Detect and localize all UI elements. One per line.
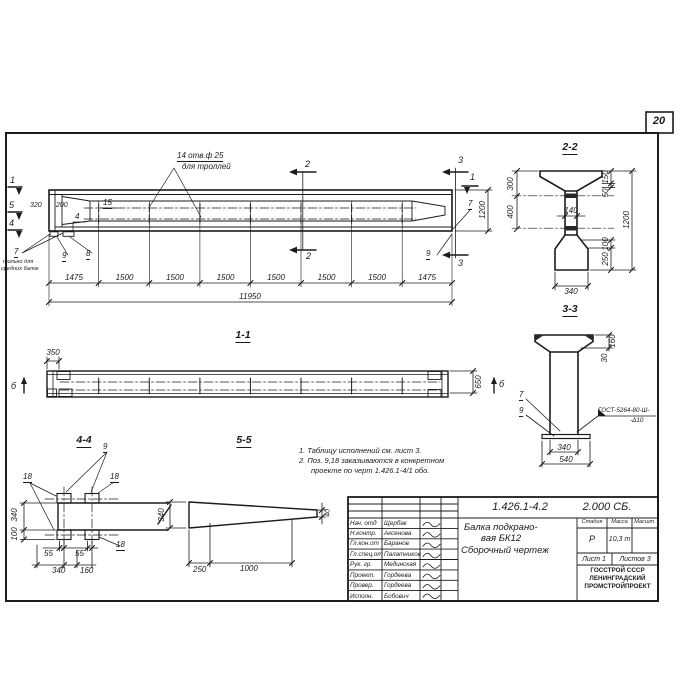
sheet-number: Лист 1 — [582, 556, 606, 563]
blueprint-page: { "page": { "number": "20" }, "main_view… — [0, 0, 700, 700]
pos-label-8: 8 — [86, 250, 90, 260]
dim-250: 250 — [602, 252, 610, 265]
pos-label-9-s33: 9 — [519, 407, 523, 417]
mass-value: 10,3 т — [609, 536, 630, 543]
org-name-line3: ПРОМСТРОЙПРОЕКТ — [584, 584, 650, 590]
pos-label-4: 4 — [75, 213, 79, 221]
drawing-title-line2: вая БК12 — [481, 534, 521, 544]
dim-100-section: 100 — [602, 237, 610, 250]
pos-7-note-line1: только для — [3, 260, 33, 266]
dim-segment: 1500 — [368, 274, 386, 282]
hole-callout-line2: для троллей — [182, 163, 231, 171]
tb-name: Бобович — [384, 594, 409, 600]
section-2-mark-bottom: 2 — [306, 252, 311, 261]
dim-total-11950: 11950 — [239, 293, 261, 301]
note-line-1: 1. Таблицу исполнений см. лист 3. — [299, 447, 422, 455]
view-1-1-title: 1-1 — [235, 330, 250, 343]
dim-55-left: 55 — [44, 550, 53, 558]
pos-label-9: 9 — [62, 252, 66, 262]
sheet-frame — [6, 112, 673, 601]
tb-name: Мединская — [384, 562, 416, 568]
view-mark-1: 1 — [10, 176, 15, 185]
section-4-4-lines — [20, 452, 171, 568]
dim-segment: 1500 — [217, 274, 235, 282]
org-name-line1: ГОССТРОЙ СССР — [590, 568, 644, 574]
pos-label-18-b: 18 — [110, 473, 119, 483]
view-mark-1-right: 1 — [470, 173, 475, 182]
drawing-title-line1: Балка подкрано- — [464, 523, 538, 533]
tb-name: Гордеева — [384, 583, 411, 589]
dim-340-s55: 340 — [158, 508, 166, 521]
dim-340-side-s44: 340 — [11, 508, 19, 521]
view-1-1-lines — [21, 357, 497, 397]
tb-name: Аксенова — [384, 531, 411, 537]
page-number: 20 — [653, 116, 665, 127]
col-header-mass: Масса — [611, 520, 628, 526]
tb-role: Гл.кон.от — [350, 541, 379, 547]
dim-340-bottom-s44: 340 — [52, 567, 65, 575]
tb-name: Гордеева — [384, 573, 411, 579]
pos-label-18-a: 18 — [23, 473, 32, 483]
dim-300: 300 — [507, 177, 515, 190]
tb-name: Баранов — [384, 541, 409, 547]
dim-150: 150 — [602, 170, 610, 183]
section-3-3-title: 3-3 — [562, 304, 577, 317]
tb-role: Гл.спец.от — [350, 552, 383, 558]
view-mark-4: 4 — [9, 219, 14, 228]
tb-role: Проект. — [350, 573, 375, 579]
view-mark-b-right: б — [499, 380, 504, 389]
section-2-mark-top: 2 — [305, 160, 310, 169]
dim-350: 350 — [46, 349, 59, 357]
pos-label-18-c: 18 — [116, 541, 125, 551]
dim-50: 50 — [602, 189, 610, 198]
dim-250-s55: 250 — [193, 566, 206, 574]
dim-1000: 1000 — [240, 565, 258, 573]
dim-segment: 1500 — [318, 274, 336, 282]
dim-540: 540 — [559, 456, 572, 464]
dim-segment: 1500 — [267, 274, 285, 282]
dim-40: 40 — [325, 509, 332, 517]
note-line-2: 2. Поз. 9,18 заказываются в конкретном — [299, 457, 444, 465]
pos-7-note-line2: средних балок — [1, 267, 39, 273]
view-5-5-title: 5-5 — [236, 435, 251, 448]
elevation-view-lines — [8, 168, 492, 306]
pos-label-7: 7 — [14, 248, 18, 258]
dim-100-s44: 100 — [11, 527, 19, 540]
doc-code: 2.000 СБ. — [583, 502, 632, 513]
dim-160-s33: 160 — [609, 334, 617, 347]
weld-note-line2: -Δ10 — [630, 418, 643, 424]
view-mark-b-left: б — [11, 382, 16, 391]
pos-label-7-right: 7 — [468, 200, 472, 210]
view-5-5-lines — [166, 502, 326, 567]
dim-650: 650 — [475, 375, 483, 388]
section-4-4-title: 4-4 — [76, 435, 91, 448]
section-3-mark-top: 3 — [458, 156, 463, 165]
col-header-stage: Стадия — [582, 520, 603, 526]
dim-1200-main: 1200 — [479, 201, 487, 219]
col-header-scale: Масшт. — [634, 520, 655, 526]
dim-1200-section: 1200 — [623, 211, 631, 229]
dim-140: 140 — [564, 207, 577, 215]
section-2-2-title: 2-2 — [562, 142, 577, 155]
note-line-3: проекте по черт 1.426.1-4/1 обо. — [311, 467, 429, 475]
dim-55-right: 55 — [75, 550, 84, 558]
dim-320: 320 — [30, 202, 42, 209]
dim-340-s33: 340 — [557, 444, 570, 452]
tb-name: Палатников — [384, 552, 421, 558]
stage-value: Р — [589, 535, 595, 544]
dim-340-s22: 340 — [564, 288, 577, 296]
section-mark-arrows — [16, 169, 470, 259]
pos-label-9-right: 9 — [426, 250, 430, 260]
leader-lines — [22, 168, 471, 255]
org-name-line2: ЛЕНИНГРАДСКИЙ — [589, 576, 645, 582]
dim-400: 400 — [507, 205, 515, 218]
tb-role: Рук. гр. — [350, 562, 372, 568]
dim-segment: 1475 — [65, 274, 83, 282]
doc-number: 1.426.1-4.2 — [492, 502, 548, 513]
dim-200: 200 — [56, 202, 68, 209]
section-3-mark-bottom: 3 — [458, 259, 463, 268]
sheets-total: Листов 3 — [619, 556, 650, 563]
view-mark-5: 5 — [9, 201, 14, 210]
dim-segment: 1475 — [418, 274, 436, 282]
pos-label-15: 15 — [103, 199, 112, 209]
section-2-2-lines — [512, 171, 636, 290]
dim-segment: 1500 — [116, 274, 134, 282]
tb-role: Исполн. — [350, 594, 373, 600]
dim-segment: 1500 — [166, 274, 184, 282]
pos-label-9-s44: 9 — [103, 443, 107, 453]
hole-callout-line1: 14 отв.ф 25 — [177, 152, 223, 162]
weld-note-line1: ГОСТ-5264-80-Ш- — [598, 408, 650, 414]
tb-name: Щербак — [384, 521, 407, 527]
tb-role: Н.контр. — [350, 531, 377, 537]
pos-label-7-s33: 7 — [519, 391, 523, 401]
tb-role: Нач. отд — [350, 521, 377, 527]
dim-160-s44: 160 — [80, 567, 93, 575]
tb-role: Провер. — [350, 583, 373, 589]
signature-scribbles — [423, 522, 440, 598]
drawing-title-line3: Сборочный чертеж — [461, 546, 549, 556]
dim-30: 30 — [601, 354, 609, 363]
section-3-3-lines — [526, 335, 656, 467]
section-cut-lines — [303, 168, 456, 258]
